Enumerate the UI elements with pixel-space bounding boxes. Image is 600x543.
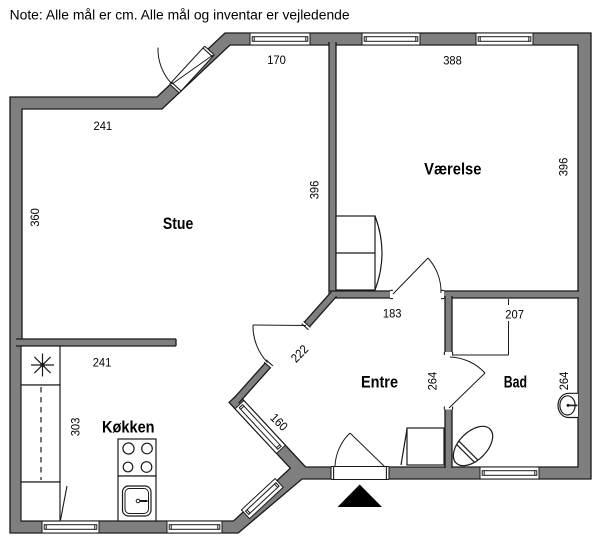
svg-text:241: 241 bbox=[94, 119, 113, 133]
svg-text:396: 396 bbox=[557, 158, 571, 177]
svg-text:241: 241 bbox=[93, 356, 112, 370]
svg-text:303: 303 bbox=[68, 418, 82, 437]
svg-text:Entre: Entre bbox=[361, 374, 398, 392]
svg-text:Bad: Bad bbox=[504, 373, 527, 391]
svg-text:264: 264 bbox=[426, 372, 440, 391]
svg-text:264: 264 bbox=[557, 372, 571, 391]
svg-text:207: 207 bbox=[505, 308, 524, 322]
svg-text:Værelse: Værelse bbox=[424, 160, 481, 178]
svg-text:183: 183 bbox=[383, 307, 402, 321]
svg-text:388: 388 bbox=[443, 54, 462, 68]
svg-text:360: 360 bbox=[28, 208, 42, 227]
svg-text:Note: Alle mål er cm. Alle mål: Note: Alle mål er cm. Alle mål og invent… bbox=[10, 8, 350, 23]
svg-text:Køkken: Køkken bbox=[102, 417, 155, 436]
svg-text:Stue: Stue bbox=[163, 214, 193, 233]
svg-text:170: 170 bbox=[267, 53, 286, 67]
svg-text:396: 396 bbox=[307, 181, 321, 200]
